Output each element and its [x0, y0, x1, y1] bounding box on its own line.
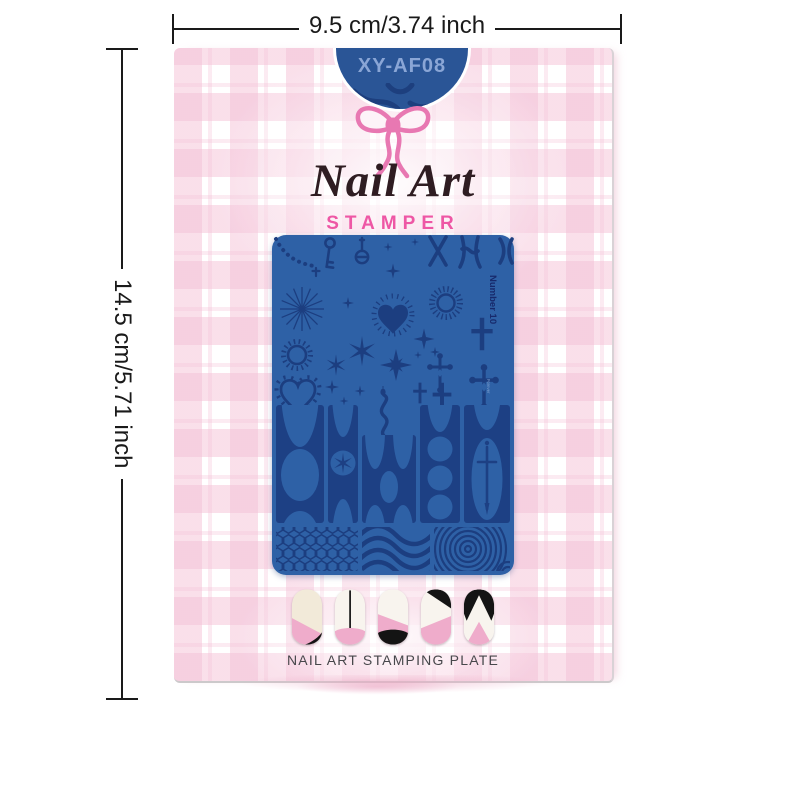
nail-sample-3	[374, 588, 412, 646]
dimension-tick	[106, 698, 138, 700]
width-dimension-label: 9.5 cm/3.74 inch	[299, 12, 495, 40]
plate-cross-label: Forever	[486, 379, 491, 394]
height-dimension: 14.5 cm/5.71 inch	[103, 48, 141, 700]
package-footer-label: NAIL ART STAMPING PLATE	[174, 652, 612, 668]
dimension-line	[174, 28, 299, 30]
product-package: XY-AF08 Nail Art STAMPER	[174, 48, 614, 683]
dimension-line	[121, 479, 123, 698]
dimension-tick	[620, 14, 622, 44]
stamping-plate-image: Number 10	[272, 235, 514, 575]
height-dimension-label: 14.5 cm/5.71 inch	[108, 269, 136, 478]
plate-number-label: Number 10	[487, 275, 498, 324]
product-image: 9.5 cm/3.74 inch 14.5 cm/5.71 inch XY-AF…	[0, 0, 800, 800]
nail-sample-2	[331, 588, 369, 646]
nail-sample-4	[417, 588, 455, 646]
nail-sample-5	[460, 588, 498, 646]
model-code: XY-AF08	[336, 55, 468, 78]
brand-block: Nail Art STAMPER	[174, 98, 612, 235]
brand-subtitle: STAMPER	[174, 213, 612, 235]
dimension-line	[495, 28, 620, 30]
dimension-line	[121, 50, 123, 269]
nail-samples-row	[174, 588, 612, 646]
width-dimension: 9.5 cm/3.74 inch	[172, 10, 622, 48]
nail-sample-1	[288, 588, 326, 646]
brand-title: Nail Art	[174, 158, 612, 205]
